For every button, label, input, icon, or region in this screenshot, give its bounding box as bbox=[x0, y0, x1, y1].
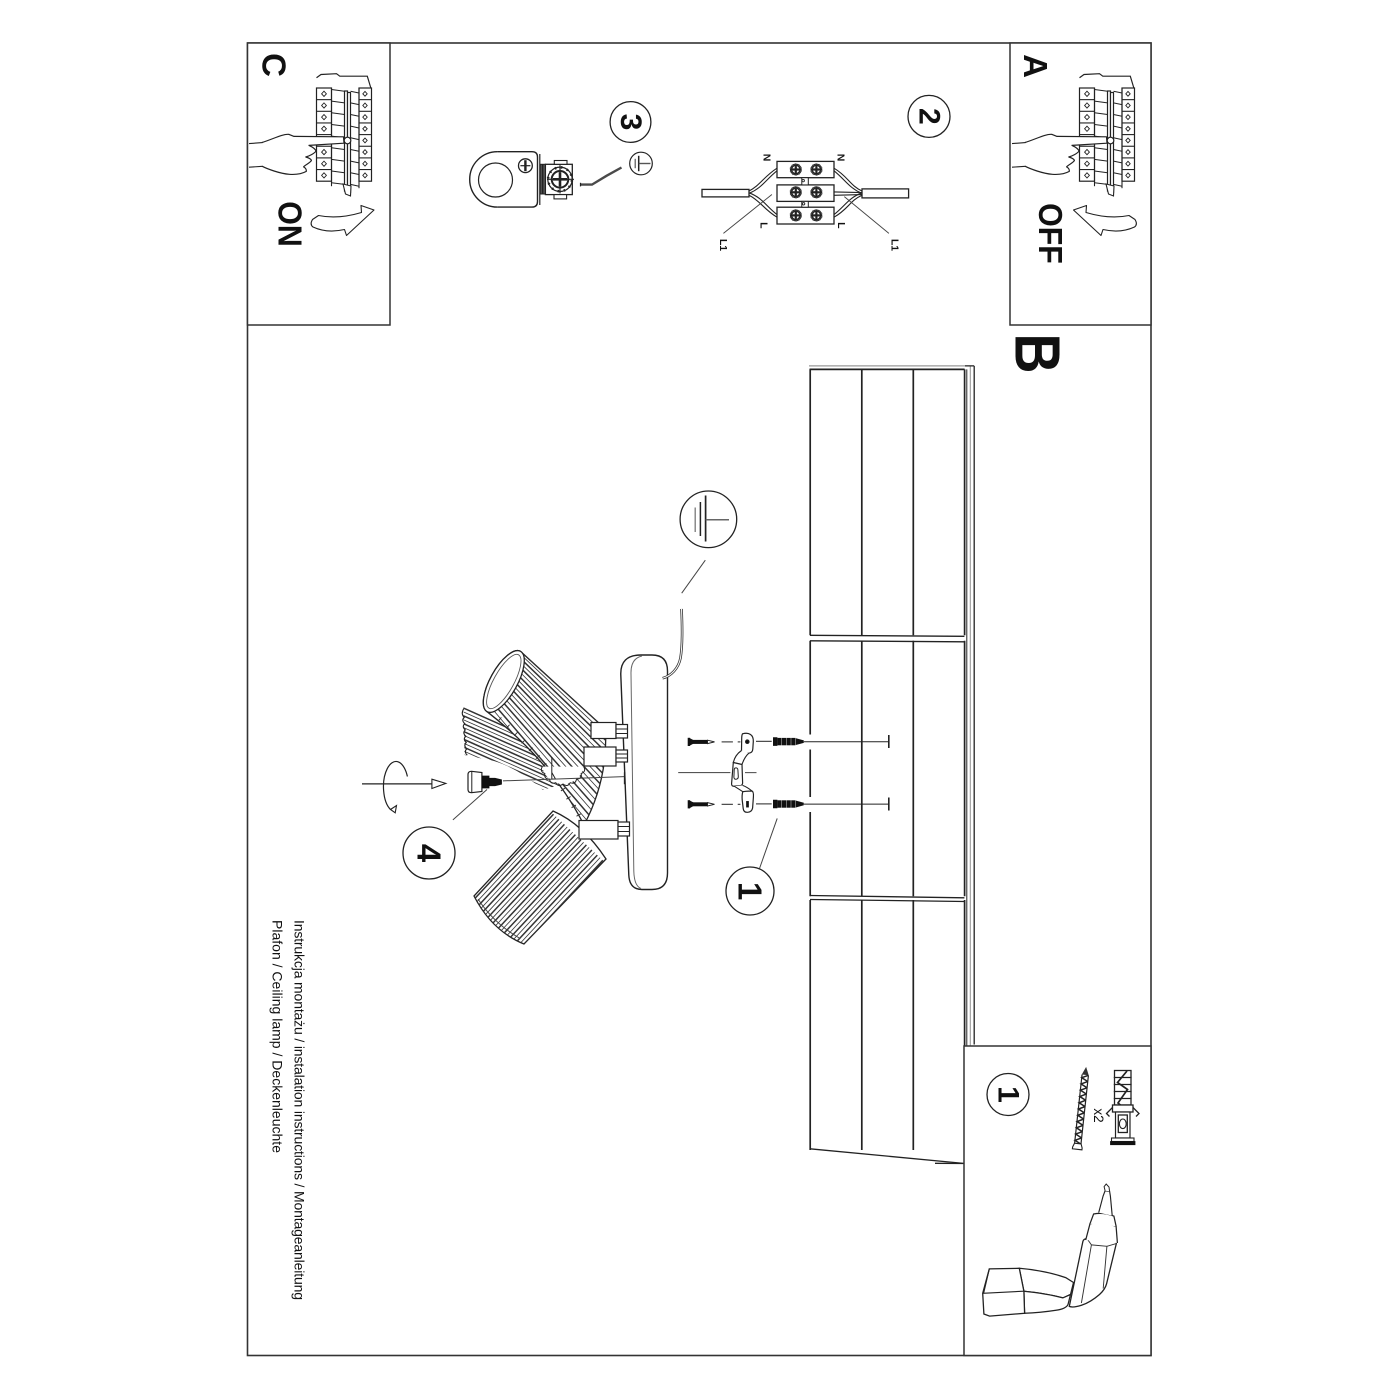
svg-text:A: A bbox=[1017, 54, 1054, 78]
svg-text:x2: x2 bbox=[1091, 1108, 1106, 1122]
svg-text:B: B bbox=[1002, 333, 1073, 373]
svg-text:C: C bbox=[256, 53, 293, 77]
svg-text:N: N bbox=[761, 154, 773, 162]
svg-text:1: 1 bbox=[732, 882, 769, 900]
svg-text:ON: ON bbox=[271, 201, 308, 247]
svg-text:4: 4 bbox=[411, 844, 448, 863]
svg-text:Plafon / Ceiling lamp / Decken: Plafon / Ceiling lamp / Deckenleuchte bbox=[270, 920, 286, 1153]
svg-text:L1: L1 bbox=[717, 239, 729, 251]
svg-text:Instrukcja montażu / instalati: Instrukcja montażu / instalation instruc… bbox=[292, 920, 308, 1300]
svg-text:L1: L1 bbox=[888, 239, 900, 251]
svg-text:N: N bbox=[834, 154, 846, 162]
svg-text:3: 3 bbox=[614, 114, 647, 131]
svg-text:1: 1 bbox=[992, 1086, 1025, 1103]
svg-text:L: L bbox=[835, 222, 847, 229]
svg-text:L: L bbox=[757, 222, 769, 229]
svg-text:2: 2 bbox=[913, 108, 946, 125]
svg-text:OFF: OFF bbox=[1032, 203, 1069, 264]
